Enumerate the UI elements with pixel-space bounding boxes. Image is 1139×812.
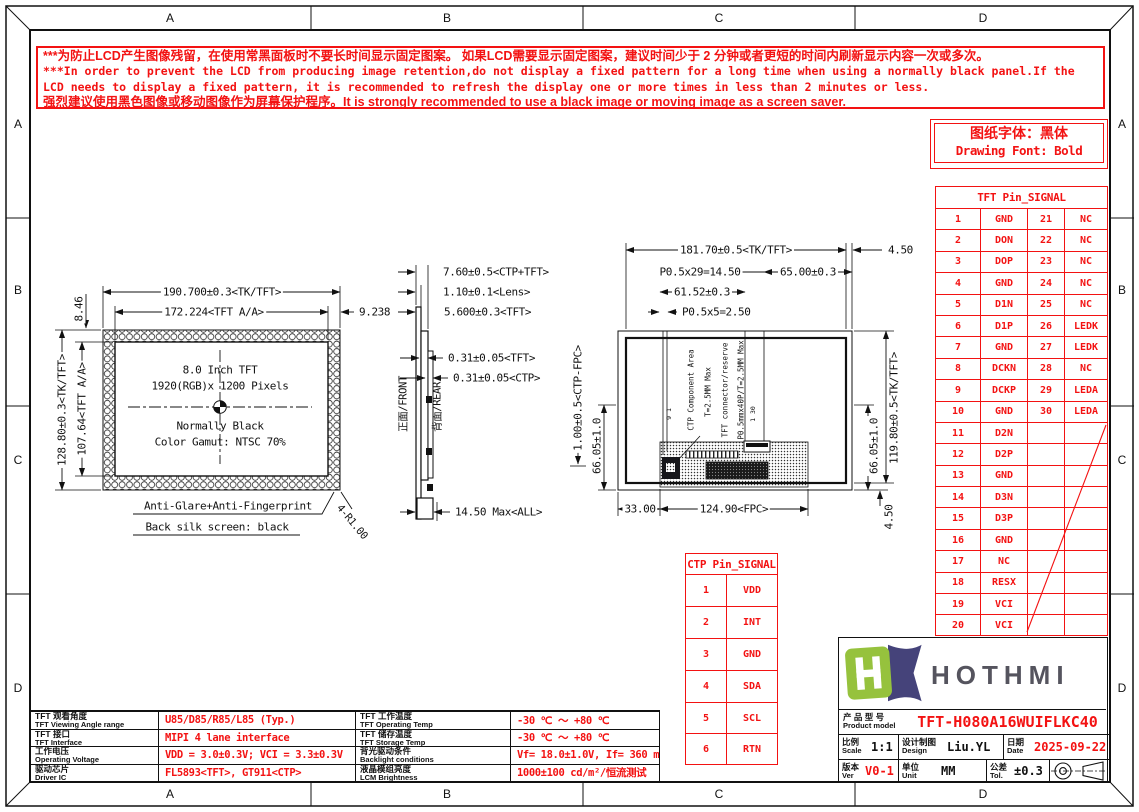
spec-row: 驱动芯片 Driver IC FL5893<TFT>, GT911<CTP> (31, 764, 355, 782)
zone-letter-bottom-a: A (166, 787, 174, 801)
ctp-pin-row: 1 VDD (686, 574, 777, 606)
ctp-pin-row: 3 GND (686, 638, 777, 670)
title-block: HOTHMI 产 品 型 号 Product model TFT-H080A16… (838, 637, 1108, 782)
dim-front-aa-width: 172.224<TFT A/A> (162, 306, 266, 319)
panel-mode-label: Normally Black (176, 420, 263, 433)
tft-pin-row: 18 RESX (936, 572, 1107, 593)
zone-letter-right-b: B (1118, 283, 1126, 297)
dim-back-conn-left-y: 66.05±1.0 (591, 416, 604, 476)
engineering-drawing: A B C D A B C D A B C D A B C D ***为防止LC… (0, 0, 1139, 812)
drawing-font-en: Drawing Font: Bold (935, 143, 1103, 159)
dim-side-ctp-tft: 7.60±0.5<CTP+TFT> (441, 266, 551, 279)
dim-back-edge-bottom-right: 4.50 (883, 503, 896, 532)
zone-letter-right-d: D (1118, 681, 1127, 695)
dim-side-tft: 5.600±0.3<TFT> (442, 306, 533, 319)
tft-pin-row: 15 D3P (936, 507, 1107, 528)
dim-back-tft-pins: P0.5x29=14.50 (658, 266, 743, 279)
tft-pin-row: 10 GND 30 LEDA (936, 401, 1107, 422)
design-value: Liu.YL (947, 740, 990, 754)
dim-front-outer-width: 190.700±0.3<TK/TFT> (161, 286, 283, 299)
dim-back-fpc-width: 124.90<FPC> (698, 503, 770, 516)
front-note-backsilk: Back silk screen: black (145, 521, 288, 534)
ctp-pin-row: 6 RTN (686, 733, 777, 765)
back-ann-ctp-area: CTP Component Area (687, 348, 696, 431)
zone-letter-bottom-b: B (443, 787, 451, 801)
ctp-pin-row: 5 SCL (686, 702, 777, 734)
tft-pin-row: 11 D2N (936, 422, 1107, 443)
side-front-label: 正面/FRONT (396, 374, 411, 434)
spec-row: 背光驱动条件 Backlight conditions Vf= 18.0±1.0… (356, 746, 659, 764)
tft-pin-row: 12 D2P (936, 443, 1107, 464)
dim-side-lens: 1.10±0.1<Lens> (441, 286, 532, 299)
zone-letter-right-a: A (1118, 117, 1126, 131)
tft-pin-row: 13 GND (936, 465, 1107, 486)
design-cell: 设计制图 Design Liu.YL (898, 734, 1003, 759)
tft-pin-table-title: TFT Pin_SIGNAL (936, 187, 1107, 208)
tft-pin-row: 14 D3N (936, 486, 1107, 507)
ctp-pin-signal-table: CTP Pin_SIGNAL 1 VDD 2 INT 3 GND (685, 553, 778, 765)
product-model-label: 产 品 型 号 Product model (839, 709, 909, 734)
dim-back-ctp-offset: 61.52±0.3 (672, 286, 732, 299)
ctp-pin-row: 2 INT (686, 606, 777, 638)
image-retention-warning: ***为防止LCD产生图像残留，在使用常黑面板时不要长时间显示固定图案。 如果L… (36, 46, 1105, 109)
third-angle-projection-icon (1050, 760, 1108, 782)
tft-pin-row: 9 DCKP 29 LEDA (936, 379, 1107, 400)
tft-pin-row: 1 GND 21 NC (936, 208, 1107, 229)
product-model-value: TFT-H080A16WUIFLKC40 (917, 713, 1098, 731)
tft-pin-table-rows: 1 GND 21 NC 2 DON 22 NC 3 DOP 23 NC (936, 208, 1107, 636)
ctp-pin-row: 4 SDA (686, 670, 777, 702)
dim-back-outer-width: 181.70±0.5<TK/TFT> (678, 244, 794, 257)
tolerance-value: ±0.3 (1014, 764, 1043, 778)
brand-name: HOTHMI (931, 660, 1070, 691)
tft-pin-signal-table: TFT Pin_SIGNAL 1 GND 21 NC 2 DON 22 NC (935, 186, 1108, 636)
tft-pin-row: 17 NC (936, 550, 1107, 571)
version-cell: 版本 Ver V0-1 (839, 759, 898, 782)
drawing-font-cn: 图纸字体：黑体 (935, 124, 1103, 143)
zone-letter-bottom-d: D (979, 787, 988, 801)
back-ann-ctp-thickness: T=2.5MM Max (704, 366, 713, 418)
back-ann-tft-pins: P0.5mmx40P/T=2.5MM Max (737, 339, 746, 440)
back-ann-tft-connector: TFT connector/reserve (721, 342, 730, 439)
zone-letter-bottom-c: C (715, 787, 724, 801)
zone-letter-top-d: D (979, 11, 988, 25)
ctp-pin-table-title: CTP Pin_SIGNAL (686, 554, 777, 574)
dim-back-outer-height: 119.80±0.5<TK/TFT> (888, 350, 901, 466)
zone-letter-top-a: A (166, 11, 174, 25)
version-value: V0-1 (865, 764, 894, 778)
unit-cell: 单位 Unit MM (898, 759, 986, 782)
dim-side-total: 14.50 Max<ALL> (453, 506, 544, 519)
dim-front-border-top: 8.46 (73, 295, 86, 324)
spec-row: 液晶模组亮度 LCM Brightness 1000±100 cd/m²/恒流测… (356, 764, 659, 782)
zone-letter-top-c: C (715, 11, 724, 25)
warning-line-en-2: LCD needs to display a fixed pattern, it… (43, 80, 1098, 95)
back-pin-mark-tft: 1 30 (749, 405, 757, 423)
warning-line-cn-2: 强烈建议使用黑色图像或移动图像作为屏幕保护程序。It is strongly r… (43, 95, 1098, 109)
dim-front-border-right: 9.238 (357, 306, 392, 319)
product-model-value-cell: TFT-H080A16WUIFLKC40 (909, 709, 1106, 734)
zone-letter-left-c: C (14, 453, 23, 467)
side-rear-label: 背面/REAR (430, 380, 445, 434)
tft-pin-row: 16 GND (936, 529, 1107, 550)
ctp-pin-table-rows: 1 VDD 2 INT 3 GND 4 SDA (686, 574, 777, 765)
panel-resolution-label: 1920(RGB)x 1200 Pixels (152, 380, 289, 393)
dim-back-ctp-pins: P0.5x5=2.50 (680, 306, 752, 319)
zone-letter-right-c: C (1118, 453, 1127, 467)
zone-letter-left-d: D (14, 681, 23, 695)
drawing-font-note-inner: 图纸字体：黑体 Drawing Font: Bold (934, 123, 1104, 163)
unit-value: MM (941, 764, 955, 778)
drawing-font-note: 图纸字体：黑体 Drawing Font: Bold (930, 119, 1108, 169)
spec-row: TFT 观看角度 TFT Viewing Angle range U85/D85… (31, 711, 355, 729)
dim-back-conn-right-y: 66.05±1.0 (868, 416, 881, 476)
dim-back-edge-top-right: 4.50 (886, 244, 915, 257)
tft-pin-row: 2 DON 22 NC (936, 229, 1107, 250)
panel-size-label: 8.0 Inch TFT (183, 364, 258, 377)
spec-row: TFT 接口 TFT Interface MIPI 4 lane interfa… (31, 729, 355, 747)
panel-gamut-label: Color Gamut: NTSC 70% (155, 436, 286, 449)
tolerance-cell: 公差 Tol. ±0.3 (986, 759, 1049, 782)
dim-back-fpc-left: 33.00 (622, 503, 657, 516)
zone-letter-left-b: B (14, 283, 22, 297)
projection-symbol-cell (1049, 759, 1109, 782)
tft-pin-row: 5 D1N 25 NC (936, 294, 1107, 315)
tft-pin-row: 4 GND 24 NC (936, 272, 1107, 293)
scale-cell: 比例 Scale 1:1 (839, 734, 898, 759)
tft-pin-row: 20 VCI (936, 614, 1107, 635)
spec-row: TFT 储存温度 TFT Storage Temp -30 ℃ ～ +80 ℃ (356, 729, 659, 747)
tft-pin-row: 19 VCI (936, 593, 1107, 614)
tft-pin-row: 7 GND 27 LEDK (936, 336, 1107, 357)
date-cell: 日期 Date 2025-09-22 (1003, 734, 1109, 759)
hothmi-logo-icon (845, 642, 931, 704)
back-pin-mark-ctp: 9 1 (665, 407, 673, 421)
dim-back-conn-offset: 65.00±0.3 (778, 266, 838, 279)
dim-front-aa-height: 107.64<TFT A/A> (76, 360, 89, 457)
dim-side-tft-tape: 0.31±0.05<TFT> (446, 352, 537, 365)
dim-back-ctp-fpc: 1.00±0.5<CTP-FPC> (572, 343, 585, 453)
spec-table-right: TFT 工作温度 TFT Operating Temp -30 ℃ ～ +80 … (355, 710, 660, 782)
spec-row: 工作电压 Operating Voltage VDD = 3.0±0.3V; V… (31, 746, 355, 764)
tft-pin-row: 8 DCKN 28 NC (936, 358, 1107, 379)
front-note-antiglare: Anti-Glare+Anti-Fingerprint (144, 500, 312, 513)
date-value: 2025-09-22 (1034, 740, 1106, 754)
tft-pin-row: 3 DOP 23 NC (936, 251, 1107, 272)
zone-letter-left-a: A (14, 117, 22, 131)
spec-row: TFT 工作温度 TFT Operating Temp -30 ℃ ～ +80 … (356, 711, 659, 729)
warning-line-cn-1: ***为防止LCD产生图像残留，在使用常黑面板时不要长时间显示固定图案。 如果L… (43, 49, 1098, 64)
tft-pin-row: 6 D1P 26 LEDK (936, 315, 1107, 336)
spec-table-left: TFT 观看角度 TFT Viewing Angle range U85/D85… (30, 710, 356, 782)
warning-line-en-1: ***In order to prevent the LCD from prod… (43, 64, 1098, 79)
zone-letter-top-b: B (443, 11, 451, 25)
dim-front-outer-height: 128.80±0.3<TK/TFT> (56, 352, 69, 468)
scale-value: 1:1 (871, 740, 893, 754)
dim-side-ctp-tape: 0.31±0.05<CTP> (451, 372, 542, 385)
